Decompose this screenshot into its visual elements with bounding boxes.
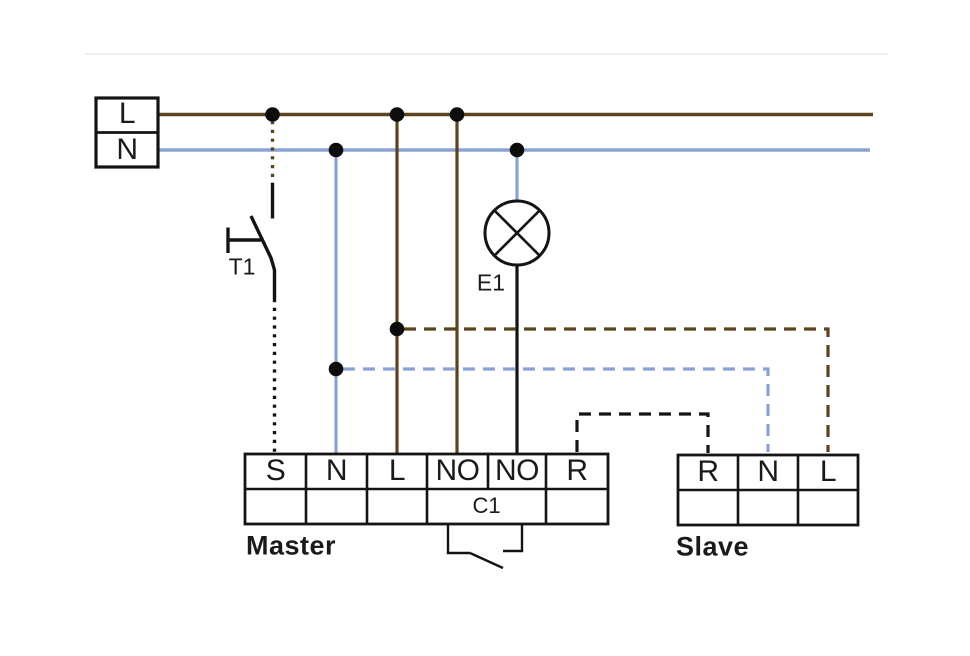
junction-dot xyxy=(265,107,280,122)
contact-right-lead xyxy=(503,524,522,551)
master-terminal-block xyxy=(245,454,608,524)
junction-dot xyxy=(329,362,344,377)
master-block-label: Master xyxy=(246,533,336,560)
junction-dot xyxy=(390,322,405,337)
wiring-diagram-canvas: L N T1 E1 S N L NO NO R C1 Master R N L … xyxy=(0,0,970,656)
junction-dot xyxy=(450,107,465,122)
pushbutton-label: T1 xyxy=(229,256,256,279)
contact-left-lead xyxy=(448,524,470,553)
contact-blade xyxy=(470,553,503,568)
slave-block-label: Slave xyxy=(676,534,749,561)
slave-terminal-label-l: L xyxy=(820,457,836,487)
c1-contact-label: C1 xyxy=(472,495,500,517)
junction-dot xyxy=(390,107,405,122)
neutral-to-slave-n-link xyxy=(343,369,768,452)
lamp-label: E1 xyxy=(477,272,505,295)
lamp-symbol xyxy=(485,201,549,265)
live-to-slave-l-link xyxy=(404,329,828,452)
c1-relay-contact-symbol xyxy=(448,524,522,568)
slave-terminal-label-r: R xyxy=(697,457,718,487)
diagram-graphics xyxy=(0,0,970,656)
master-terminal-label-l: L xyxy=(389,456,405,486)
junction-dot xyxy=(329,143,344,158)
supply-terminal-label-l: L xyxy=(119,99,135,129)
master-r-to-slave-r-link xyxy=(577,414,708,453)
master-terminal-label-no2: NO xyxy=(495,456,539,486)
master-terminal-label-r: R xyxy=(566,456,587,486)
junction-dot xyxy=(510,143,525,158)
master-terminal-label-s: S xyxy=(266,456,286,486)
supply-terminal-label-n: N xyxy=(116,135,137,165)
master-terminal-label-n: N xyxy=(326,456,347,486)
master-terminal-label-no1: NO xyxy=(436,456,480,486)
slave-terminal-label-n: N xyxy=(757,457,778,487)
